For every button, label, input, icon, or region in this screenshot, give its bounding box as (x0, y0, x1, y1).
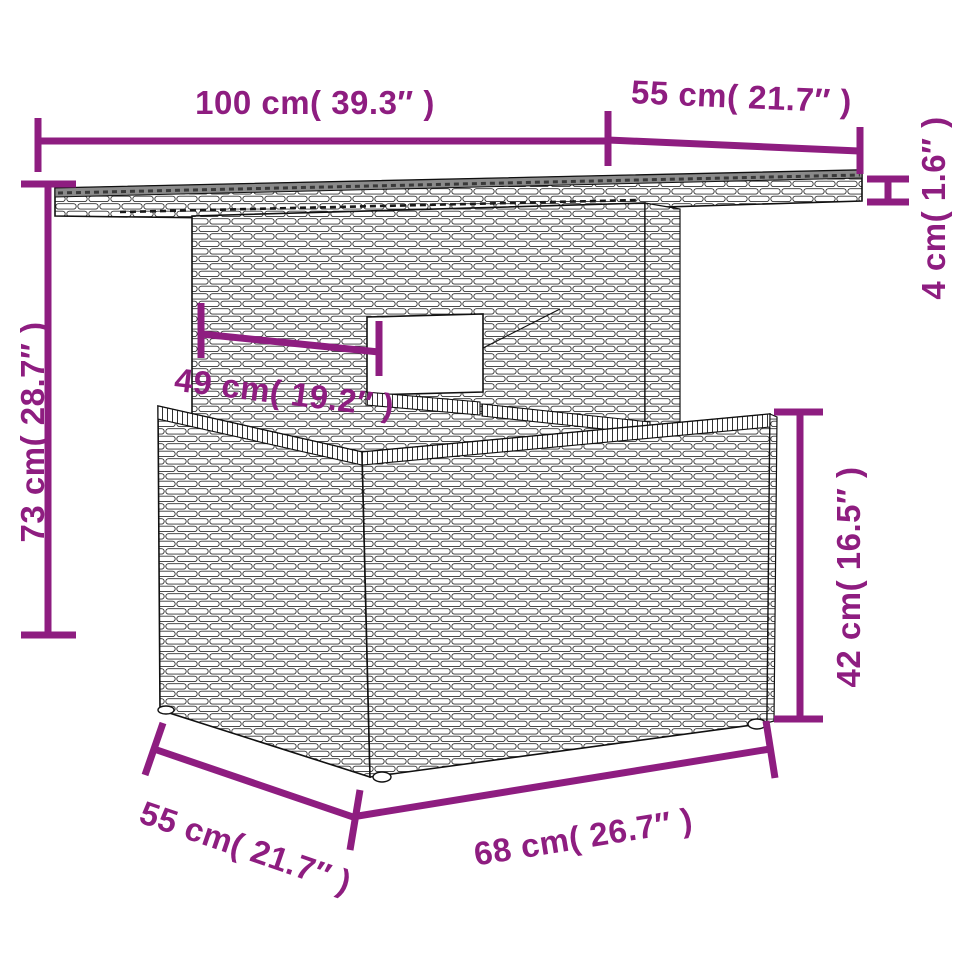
dimension-diagram: 100 cm( 39.3″ ) 55 cm( 21.7″ ) 4 cm( 1.6… (0, 0, 955, 955)
pedestal (192, 203, 680, 468)
dim-top-depth: 55 cm( 21.7″ ) (608, 73, 860, 174)
base-box (158, 406, 777, 782)
base-left-face (158, 406, 370, 777)
table-drawing (55, 170, 862, 782)
dim-label-top-thickness: 4 cm( 1.6″ ) (915, 116, 952, 299)
dim-top-thickness: 4 cm( 1.6″ ) (867, 116, 952, 299)
dim-tick (766, 721, 775, 778)
dim-tick (350, 790, 360, 850)
base-foot-center (373, 772, 391, 782)
dim-label-total-height: 73 cm( 28.7″ ) (14, 322, 51, 543)
dim-label-top-width: 100 cm( 39.3″ ) (195, 84, 435, 121)
dim-line (608, 140, 859, 151)
base-front-face (362, 414, 770, 777)
base-foot-left (158, 706, 174, 714)
dim-label-top-depth: 55 cm( 21.7″ ) (630, 73, 852, 120)
dim-base-height: 42 cm( 16.5″ ) (774, 412, 867, 719)
dim-label-base-height: 42 cm( 16.5″ ) (830, 467, 867, 688)
pedestal-right-side (645, 203, 680, 453)
dim-total-height: 73 cm( 28.7″ ) (14, 184, 76, 635)
dim-top-width: 100 cm( 39.3″ ) (38, 84, 608, 172)
dim-label-base-width: 68 cm( 26.7″ ) (471, 801, 695, 873)
